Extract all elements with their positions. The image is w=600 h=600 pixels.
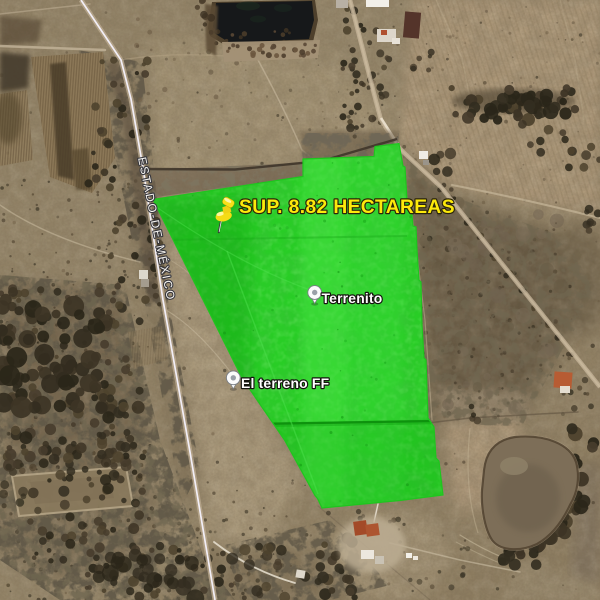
svg-text:El terreno FF: El terreno FF xyxy=(241,375,329,391)
svg-text:SUP. 8.82 HECTAREAS: SUP. 8.82 HECTAREAS xyxy=(239,197,455,218)
svg-text:Terrenito: Terrenito xyxy=(322,290,383,306)
